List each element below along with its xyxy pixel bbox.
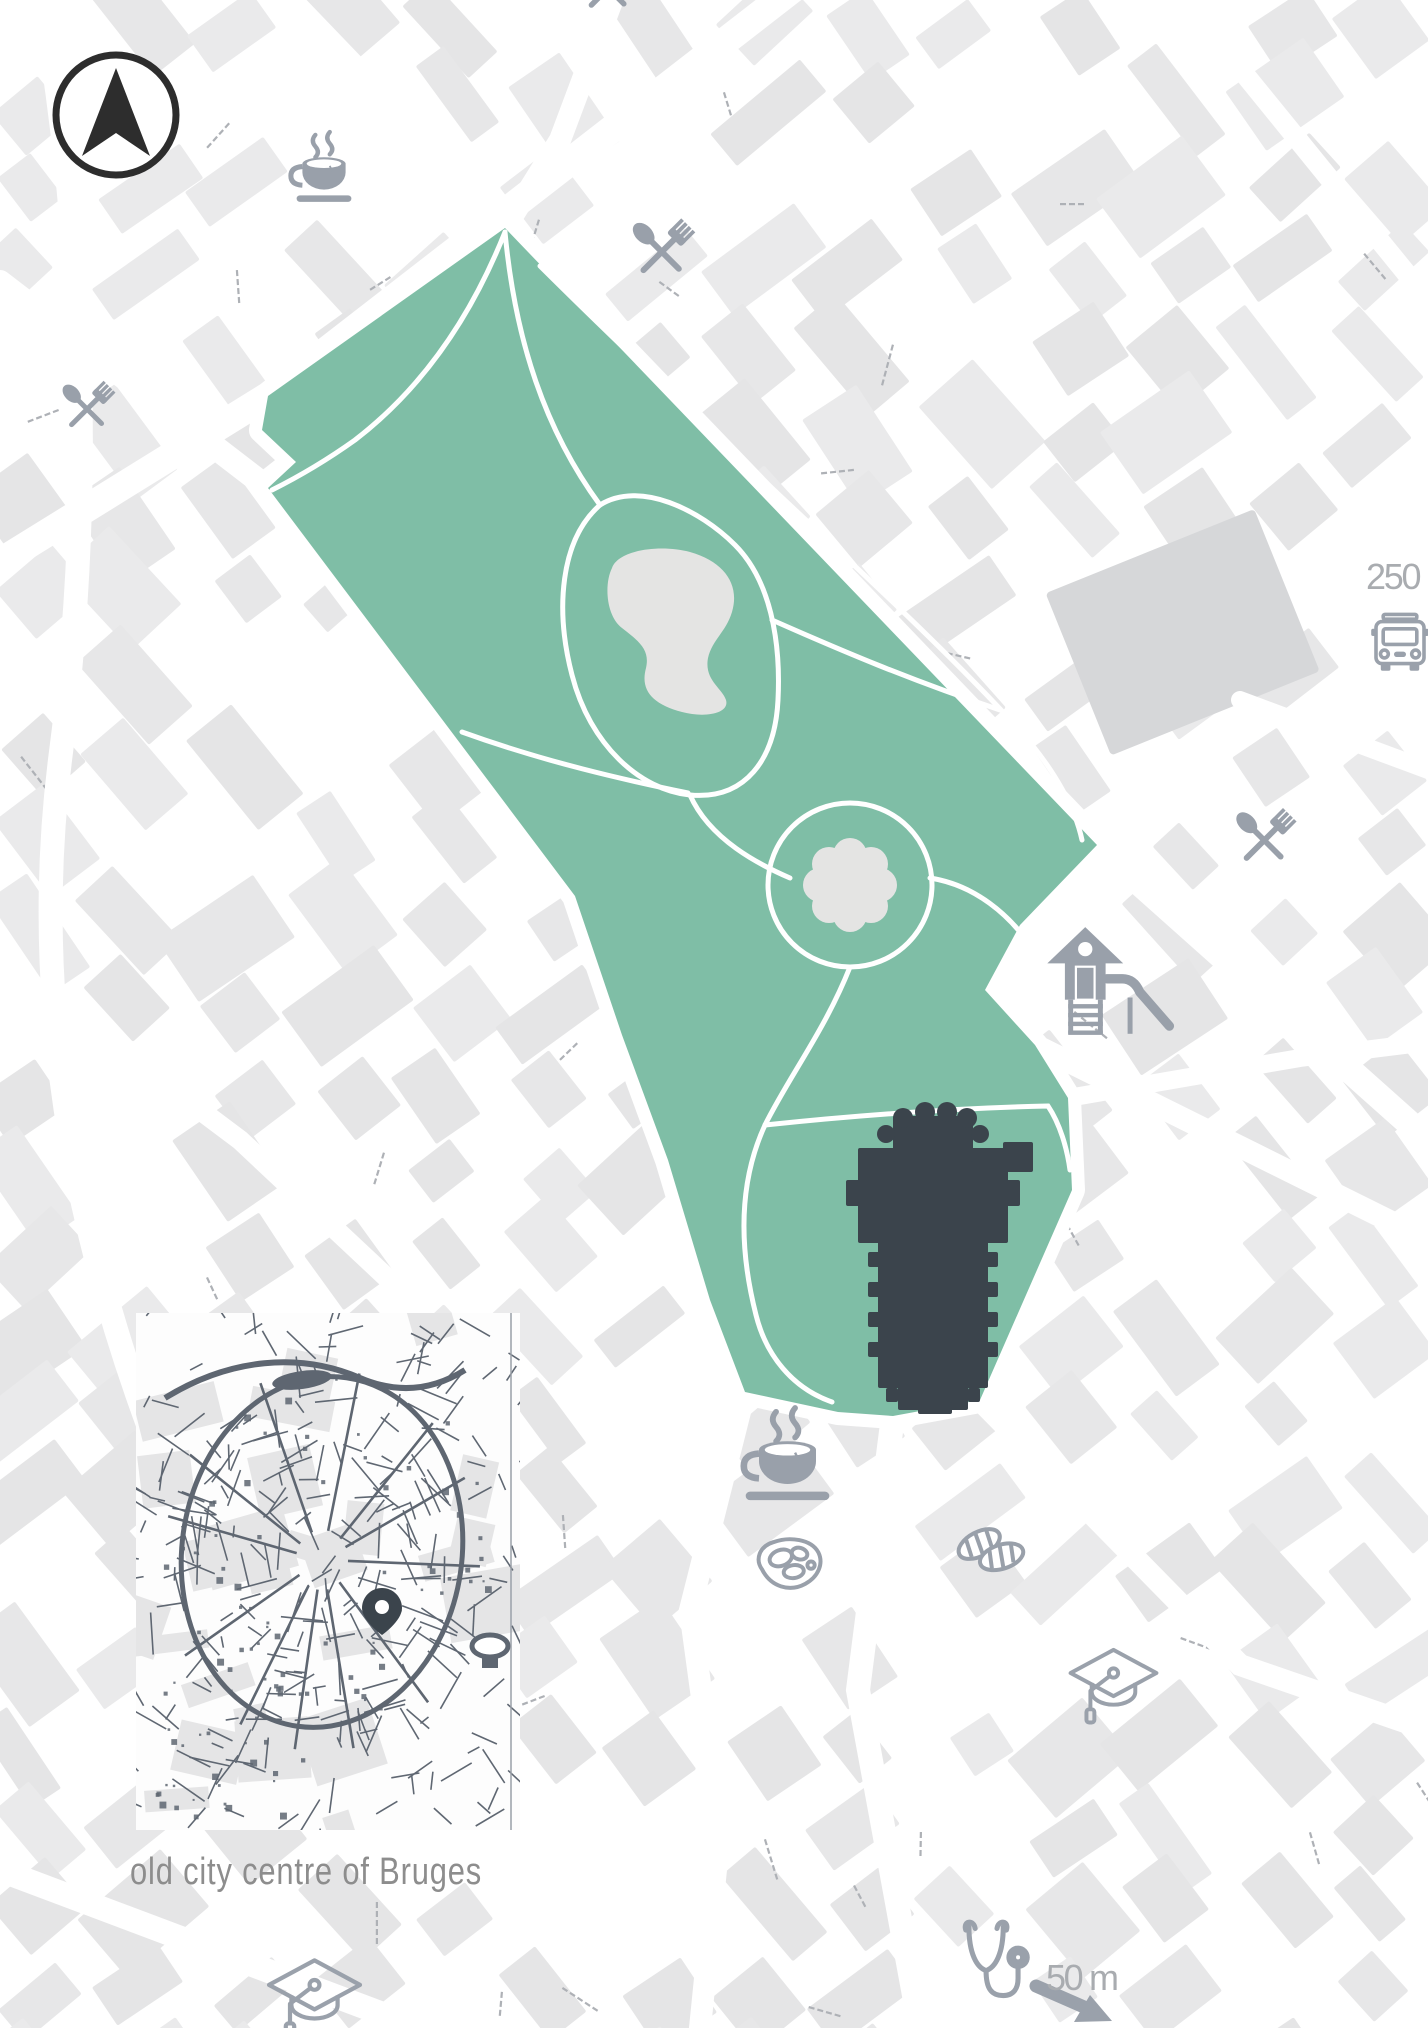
bus-icon (1371, 614, 1428, 670)
inset-caption: old city centre of Bruges (130, 1851, 482, 1893)
restaurant-cutlery-icon (1232, 808, 1296, 867)
bruges-park-map: 250 m 50 m old city centre of Bruges (0, 0, 1428, 2028)
scale-label-50m: 50 m (1046, 1957, 1120, 1998)
map-canvas: 250 m 50 m old city centre of Bruges (0, 0, 1428, 2028)
steak-icon (759, 1539, 821, 1588)
flower-bed (803, 838, 897, 932)
north-compass-icon (56, 55, 176, 175)
scale-label-250m: 250 m (1366, 556, 1428, 597)
tea-cup-icon (291, 132, 351, 202)
stethoscope-icon (965, 1922, 1030, 1995)
inset-map (102, 1280, 540, 1867)
